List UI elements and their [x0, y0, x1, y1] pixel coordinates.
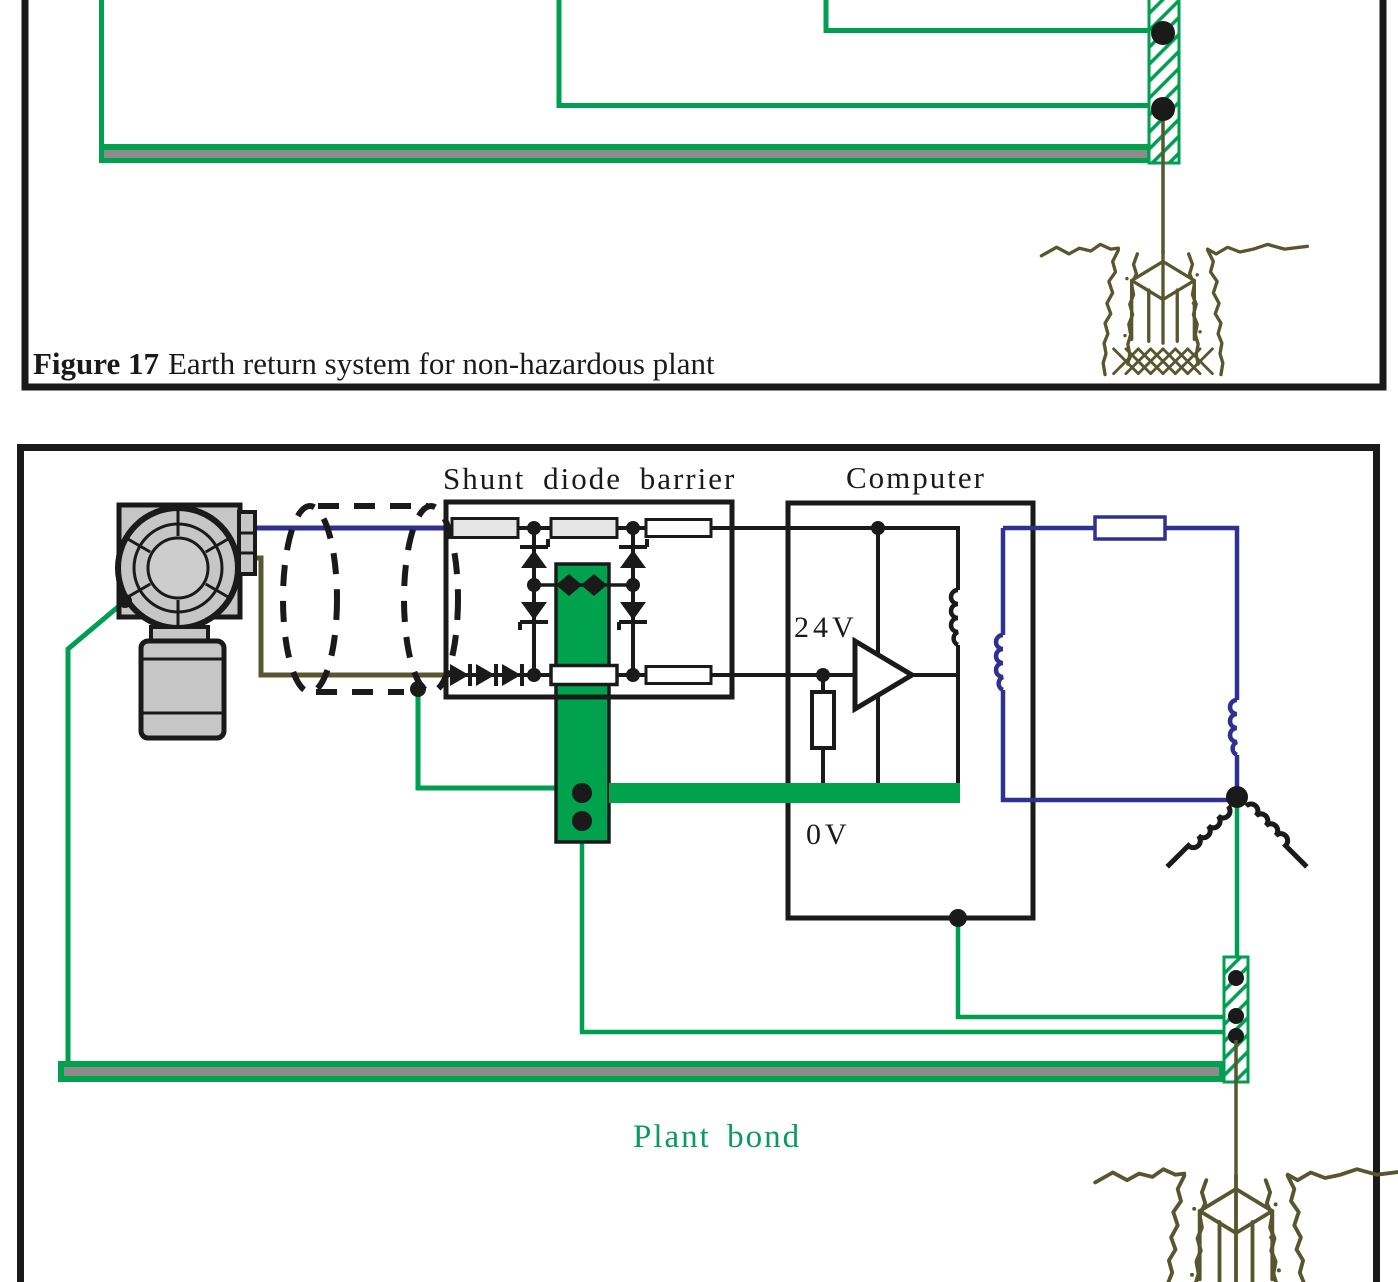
- connection-dot: [527, 521, 541, 535]
- busbar-dot: [572, 783, 592, 803]
- connection-dot: [871, 521, 885, 535]
- connection-dot: [626, 668, 640, 682]
- bond-bar-core: [64, 1067, 1219, 1076]
- supply-voltage-label: 24V: [794, 611, 858, 644]
- figure17-caption-number: Figure 17: [33, 346, 159, 381]
- computer-label: Computer: [846, 460, 986, 495]
- connection-dot: [1151, 21, 1175, 45]
- connection-dot: [410, 681, 426, 697]
- barrier-label: Shunt diode barrier: [443, 461, 736, 496]
- connection-dot: [1151, 97, 1175, 121]
- terminal-block: [239, 512, 255, 574]
- figure17-caption-text: Earth return system for non-hazardous pl…: [168, 346, 715, 381]
- connection-dot: [527, 668, 541, 682]
- figure17-plant-bond-bar: [99, 144, 1151, 163]
- bond-bar-core: [104, 150, 1147, 158]
- zero-volt-bar: [609, 783, 960, 803]
- diagram-canvas: Figure 17Earth return system for non-haz…: [0, 0, 1398, 1282]
- busbar-dot: [1228, 970, 1244, 986]
- barrier-fuse-top: [646, 520, 711, 537]
- connection-dot: [1226, 786, 1248, 808]
- connection-dot: [626, 521, 640, 535]
- busbar-dot: [1228, 1008, 1244, 1024]
- plant-bond-label: Plant bond: [633, 1119, 801, 1155]
- transmitter-body: [141, 641, 224, 738]
- page: Figure 17Earth return system for non-haz…: [0, 0, 1398, 1282]
- barrier-resistor-1: [452, 519, 518, 538]
- barrier-resistor-2: [551, 519, 617, 538]
- loop-fuse: [1095, 517, 1165, 539]
- connection-dot: [118, 594, 132, 608]
- busbar-dot: [572, 811, 592, 831]
- connection-dot: [949, 909, 967, 927]
- plant-bond-bar: [58, 1061, 1224, 1082]
- wire-crossover: [551, 666, 617, 685]
- figure17-caption: Figure 17Earth return system for non-haz…: [33, 346, 715, 381]
- connection-dot: [816, 668, 830, 682]
- zero-volt-label: 0V: [806, 818, 851, 851]
- input-resistor: [812, 692, 834, 748]
- barrier-fuse-bottom: [646, 667, 711, 684]
